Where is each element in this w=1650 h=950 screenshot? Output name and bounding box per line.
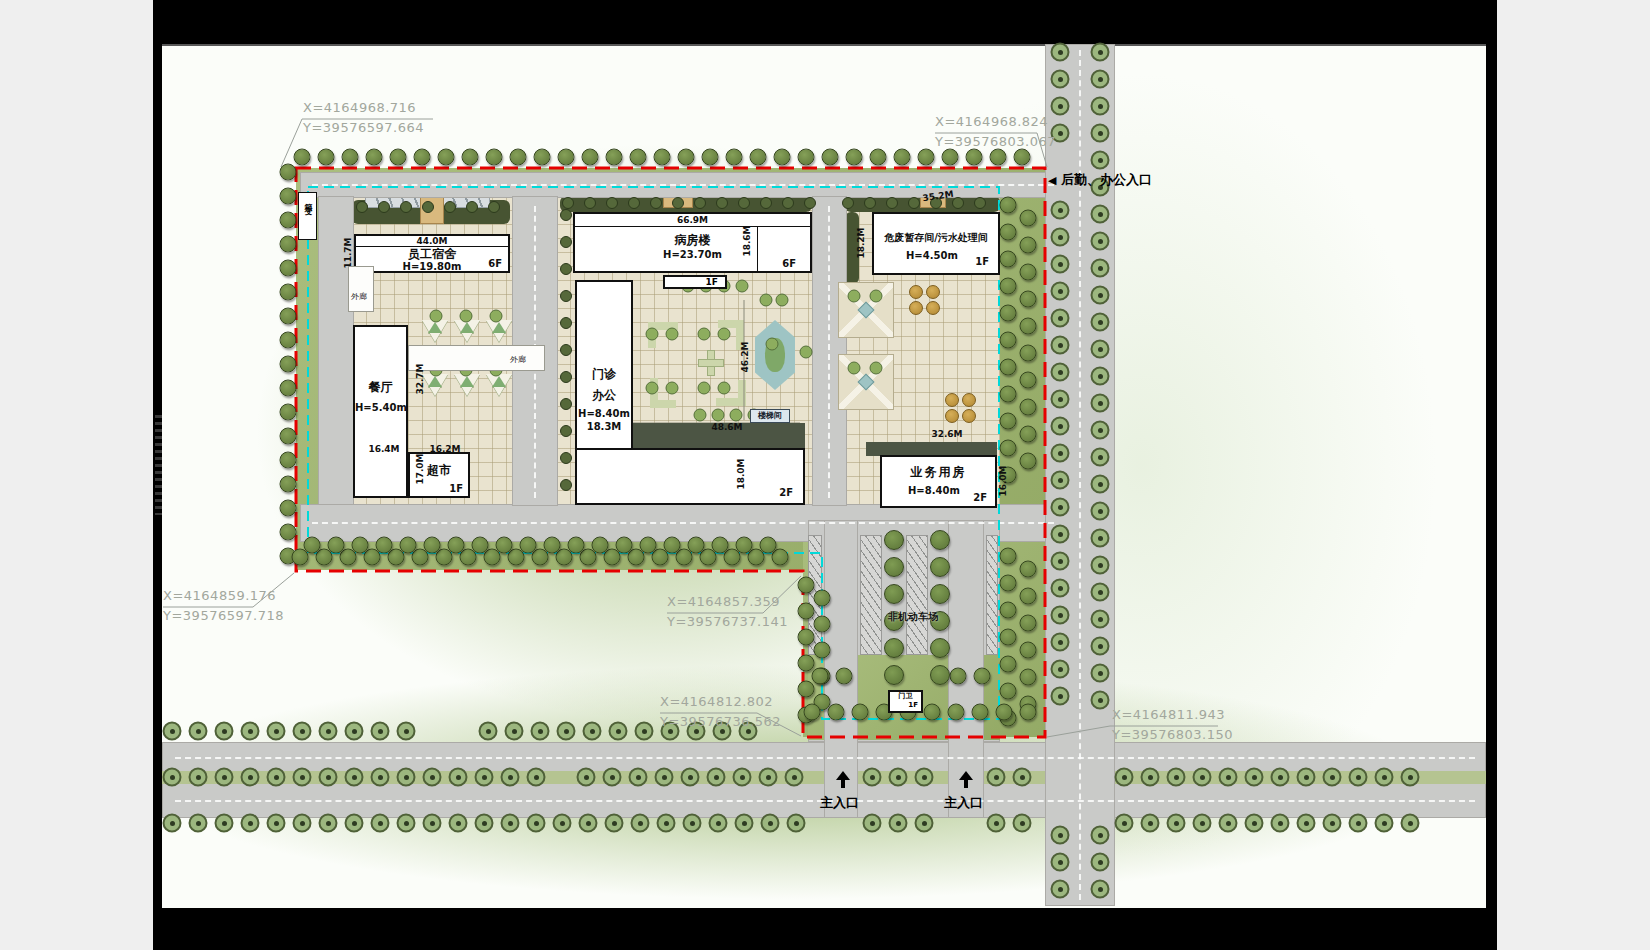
tree <box>688 537 705 554</box>
tree <box>1020 453 1037 470</box>
building-hazard: 危废暂存间/污水处理间 H=4.50m 1F <box>872 212 1000 275</box>
tree <box>1051 687 1070 706</box>
tree <box>560 209 572 221</box>
tree <box>918 149 935 166</box>
tree <box>1051 826 1070 845</box>
tree <box>376 537 393 554</box>
tree <box>1051 880 1070 899</box>
tree <box>1051 228 1070 247</box>
tree <box>568 537 585 554</box>
tree <box>422 201 434 213</box>
tree <box>761 814 780 833</box>
tree <box>267 768 286 787</box>
outpatient-height: H=8.40m <box>577 408 631 419</box>
tree <box>241 768 260 787</box>
tree <box>1349 814 1368 833</box>
canteen-height: H=5.40m <box>355 402 406 413</box>
tree <box>606 149 623 166</box>
dim-court-depth: 46.2M <box>740 341 750 372</box>
tree <box>560 344 572 356</box>
tree <box>1020 615 1037 632</box>
tree <box>1051 471 1070 490</box>
tree <box>534 149 551 166</box>
coord-y: Y=39576737.141 <box>667 612 788 632</box>
tree <box>345 814 364 833</box>
tree <box>804 704 821 721</box>
tree <box>863 768 882 787</box>
building-ward: 66.9M 病房楼 H=23.70m 6F <box>573 212 812 273</box>
tree <box>424 537 441 554</box>
tree <box>280 260 297 277</box>
arrow-left-icon: ◀ <box>1048 174 1056 187</box>
site-plan-viewer: { "colors": { "boundary_red": "#e60000",… <box>0 0 1650 950</box>
tree <box>1051 579 1070 598</box>
tree <box>304 537 321 554</box>
tree <box>666 382 679 395</box>
tree <box>449 814 468 833</box>
tree <box>560 398 572 410</box>
tree <box>1141 814 1160 833</box>
dim-dorm-depth: 11.7M <box>343 237 353 268</box>
tree <box>1020 372 1037 389</box>
tree <box>630 149 647 166</box>
tree <box>472 537 489 554</box>
arrow-up-icon <box>836 771 850 780</box>
dim-ward-depth: 18.6M <box>742 225 752 256</box>
building-canteen: 餐厅 H=5.40m <box>353 325 408 498</box>
tree <box>646 382 659 395</box>
dim-hazard-depth: 18.2M <box>856 227 866 258</box>
tree <box>1091 97 1110 116</box>
tree <box>531 722 550 741</box>
tree <box>836 668 853 685</box>
tree <box>560 263 572 275</box>
tree <box>889 814 908 833</box>
tree <box>987 814 1006 833</box>
tree <box>280 236 297 253</box>
tree <box>640 537 657 554</box>
tree <box>378 201 390 213</box>
tree <box>163 768 182 787</box>
tree <box>1091 232 1110 251</box>
tree <box>1051 255 1070 274</box>
corridor-bridge: 外廊 <box>408 345 545 371</box>
ward-name: 病房楼 <box>575 232 810 249</box>
tree <box>560 236 572 248</box>
tree <box>707 768 726 787</box>
tree <box>709 814 728 833</box>
tree <box>293 768 312 787</box>
tree <box>1020 345 1037 362</box>
tree <box>1000 332 1017 349</box>
tree <box>510 149 527 166</box>
tree <box>560 290 572 302</box>
tree <box>1091 421 1110 440</box>
tree <box>776 294 789 307</box>
tree <box>948 704 965 721</box>
transformer-name: 箱变 <box>303 197 313 201</box>
tree <box>371 722 390 741</box>
tree <box>1167 814 1186 833</box>
tree <box>490 310 503 323</box>
tree <box>1297 768 1316 787</box>
tree <box>280 284 297 301</box>
tree <box>798 577 815 594</box>
tree <box>870 362 883 375</box>
arrow-up-icon <box>959 771 973 780</box>
tree <box>1219 814 1238 833</box>
tree <box>1013 768 1032 787</box>
dim-dorm-width: 44.0M <box>356 236 508 247</box>
coord-label-2: X=4164968.824 Y=39576803.067 <box>935 112 1056 152</box>
tree <box>1020 561 1037 578</box>
tree <box>423 768 442 787</box>
tree <box>1020 318 1037 335</box>
tree <box>962 409 976 423</box>
tree <box>1091 664 1110 683</box>
tree <box>475 814 494 833</box>
tree <box>1000 575 1017 592</box>
tree <box>1091 340 1110 359</box>
tree <box>1051 363 1070 382</box>
tree <box>241 722 260 741</box>
tree <box>1000 197 1017 214</box>
tree <box>894 149 911 166</box>
tree <box>1349 768 1368 787</box>
tree <box>733 768 752 787</box>
coord-label-3: X=4164859.176 Y=39576597.718 <box>163 586 284 626</box>
tree <box>215 768 234 787</box>
tree <box>352 537 369 554</box>
ward-height: H=23.70m <box>575 249 810 260</box>
tree <box>1020 704 1037 721</box>
tree <box>1051 660 1070 679</box>
tree <box>996 704 1013 721</box>
tree <box>1000 224 1017 241</box>
coord-label-1: X=4164968.716 Y=39576597.664 <box>303 98 424 138</box>
tree <box>909 301 923 315</box>
tree <box>738 197 750 209</box>
tree <box>577 768 596 787</box>
tree <box>1051 853 1070 872</box>
outpatient-name1: 门诊 <box>577 366 631 383</box>
tree <box>449 768 468 787</box>
tree <box>366 149 383 166</box>
tree <box>1091 151 1110 170</box>
tree <box>1000 440 1017 457</box>
tree <box>852 704 869 721</box>
tree <box>605 814 624 833</box>
tree <box>501 814 520 833</box>
coord-label-6: X=4164811.943 Y=39576803.150 <box>1112 705 1233 745</box>
building-guard: 门卫 1F <box>888 690 923 713</box>
building-dormitory: 44.0M 员工宿舍 H=19.80m 6F <box>354 234 510 273</box>
tree <box>397 722 416 741</box>
tree <box>1051 417 1070 436</box>
tree <box>603 768 622 787</box>
dim-market-width: 16.2M <box>429 444 460 454</box>
tree <box>930 557 950 577</box>
tree <box>1000 548 1017 565</box>
tree <box>846 149 863 166</box>
hazard-floors: 1F <box>975 256 989 267</box>
tree <box>397 768 416 787</box>
tree <box>930 665 950 685</box>
stair-tag: 楼梯间 <box>750 409 790 423</box>
tree <box>475 768 494 787</box>
tree <box>814 642 831 659</box>
tree <box>280 212 297 229</box>
tree <box>163 722 182 741</box>
tree <box>557 722 576 741</box>
tree <box>945 393 959 407</box>
tree <box>1000 629 1017 646</box>
tree <box>345 768 364 787</box>
tree <box>1000 656 1017 673</box>
tree <box>616 537 633 554</box>
building-outpatient-wing: 2F <box>575 448 805 505</box>
tree <box>1051 444 1070 463</box>
tree <box>760 197 772 209</box>
tree <box>987 768 1006 787</box>
tree <box>716 197 728 209</box>
tree <box>1115 768 1134 787</box>
tree <box>926 301 940 315</box>
tree <box>848 362 861 375</box>
tree <box>1020 588 1037 605</box>
corridor-bridge-label: 外廊 <box>510 354 526 365</box>
tree <box>189 814 208 833</box>
tree <box>280 404 297 421</box>
bike-parking-label: 非机动车场 <box>878 610 948 624</box>
tree <box>1020 210 1037 227</box>
coord-label-5: X=4164812.802 Y=39576736.562 <box>660 692 781 732</box>
entrance-logistics-label: 后勤、办公入口 <box>1061 172 1152 187</box>
tree <box>1051 525 1070 544</box>
tree <box>628 197 640 209</box>
tree <box>1000 251 1017 268</box>
tree <box>356 201 368 213</box>
tree <box>163 814 182 833</box>
tree <box>782 197 794 209</box>
tree <box>584 197 596 209</box>
tree <box>371 768 390 787</box>
tree <box>1091 502 1110 521</box>
coord-x: X=4164968.716 <box>303 98 424 118</box>
dim-outpatient-width: 18.3M <box>577 421 631 432</box>
tree <box>798 629 815 646</box>
tree <box>1091 475 1110 494</box>
tree <box>1051 282 1070 301</box>
tree <box>423 814 442 833</box>
tree <box>486 149 503 166</box>
tree <box>870 149 887 166</box>
tree <box>609 722 628 741</box>
tree <box>870 290 883 303</box>
tree <box>655 768 674 787</box>
dim-market-depth: 17.0M <box>415 453 425 484</box>
tree <box>215 814 234 833</box>
tree <box>319 768 338 787</box>
tree <box>1051 201 1070 220</box>
tree <box>864 197 876 209</box>
coord-x: X=4164968.824 <box>935 112 1056 132</box>
ward-divider <box>757 226 758 271</box>
tree <box>488 201 500 213</box>
tree <box>280 308 297 325</box>
tree <box>1323 768 1342 787</box>
tree <box>1091 205 1110 224</box>
entrance-logistics: ◀ 后勤、办公入口 <box>1048 171 1152 189</box>
business-shadow <box>866 442 997 456</box>
tree <box>974 197 986 209</box>
building-transformer: 箱变 <box>298 192 317 240</box>
tree <box>798 149 815 166</box>
tree <box>736 280 749 293</box>
tree <box>635 722 654 741</box>
tree <box>926 285 940 299</box>
tree <box>1219 768 1238 787</box>
dim-business-width: 32.6M <box>931 429 962 439</box>
tree <box>884 665 904 685</box>
tree <box>1271 814 1290 833</box>
tree <box>397 814 416 833</box>
tree <box>371 814 390 833</box>
tree <box>583 722 602 741</box>
market-floors: 1F <box>449 483 463 494</box>
tree <box>1020 399 1037 416</box>
tree <box>930 638 950 658</box>
arrow-up-stem <box>841 780 845 788</box>
tree <box>1091 394 1110 413</box>
coord-y: Y=39576803.067 <box>935 132 1056 152</box>
tree <box>702 149 719 166</box>
tree <box>631 814 650 833</box>
tree <box>520 537 537 554</box>
coord-x: X=4164859.176 <box>163 586 284 606</box>
tree <box>527 768 546 787</box>
tree <box>560 425 572 437</box>
tree <box>889 768 908 787</box>
tree <box>553 814 572 833</box>
tree <box>328 537 345 554</box>
tree <box>345 722 364 741</box>
tree <box>1091 853 1110 872</box>
tree <box>1000 683 1017 700</box>
tree <box>501 768 520 787</box>
tree <box>466 201 478 213</box>
tree <box>1375 814 1394 833</box>
tree <box>672 197 684 209</box>
tree <box>1401 768 1420 787</box>
dim-ward-width: 66.9M <box>575 214 810 227</box>
tree <box>1091 637 1110 656</box>
tree <box>1245 814 1264 833</box>
tree <box>1091 448 1110 467</box>
tree <box>1091 70 1110 89</box>
tree <box>560 479 572 491</box>
tree <box>390 149 407 166</box>
dormitory-name: 员工宿舍 <box>356 247 508 261</box>
tree <box>400 201 412 213</box>
tree <box>448 537 465 554</box>
tree <box>759 768 778 787</box>
tree <box>1193 768 1212 787</box>
tree <box>962 393 976 407</box>
tree <box>1013 814 1032 833</box>
tree <box>241 814 260 833</box>
dim-canteen-court: 32.7M <box>415 363 425 394</box>
tree <box>1000 602 1017 619</box>
tree <box>730 409 743 422</box>
tree <box>1000 386 1017 403</box>
outpatient-floors: 2F <box>779 487 793 498</box>
tree <box>1091 691 1110 710</box>
guard-floors: 1F <box>890 701 921 710</box>
ward-floors: 6F <box>782 258 796 269</box>
tree <box>189 768 208 787</box>
hazard-name: 危废暂存间/污水处理间 <box>874 231 998 245</box>
tree <box>1051 633 1070 652</box>
tree <box>945 409 959 423</box>
business-floors: 2F <box>973 492 987 503</box>
tree <box>1091 286 1110 305</box>
tree <box>1271 768 1290 787</box>
coord-x: X=4164812.802 <box>660 692 781 712</box>
tree <box>1091 556 1110 575</box>
tree <box>342 149 359 166</box>
tree <box>800 346 813 359</box>
tree <box>736 537 753 554</box>
tree <box>280 428 297 445</box>
tree <box>280 356 297 373</box>
tree <box>886 197 898 209</box>
tree <box>804 197 816 209</box>
tree <box>760 537 777 554</box>
tree <box>664 537 681 554</box>
tree <box>280 380 297 397</box>
tree <box>735 814 754 833</box>
coord-y: Y=39576803.150 <box>1112 725 1233 745</box>
tree <box>582 149 599 166</box>
tree <box>760 294 773 307</box>
tree <box>814 590 831 607</box>
tree <box>1091 610 1110 629</box>
tree <box>294 149 311 166</box>
entrance-main-1: 主入口 <box>820 794 859 812</box>
coord-x: X=4164811.943 <box>1112 705 1233 725</box>
tree <box>293 814 312 833</box>
tree <box>496 537 513 554</box>
tree <box>848 290 861 303</box>
tree <box>215 722 234 741</box>
tree <box>267 814 286 833</box>
tree <box>766 338 779 351</box>
tree <box>444 201 456 213</box>
tree <box>189 722 208 741</box>
tree <box>915 768 934 787</box>
tree <box>319 814 338 833</box>
tree <box>1091 313 1110 332</box>
tree <box>579 814 598 833</box>
tree <box>1051 498 1070 517</box>
tree <box>558 149 575 166</box>
tree <box>1020 264 1037 281</box>
tree <box>1051 70 1070 89</box>
tree <box>505 722 524 741</box>
tree <box>884 557 904 577</box>
ward-annex-tag: 1F <box>663 275 727 289</box>
